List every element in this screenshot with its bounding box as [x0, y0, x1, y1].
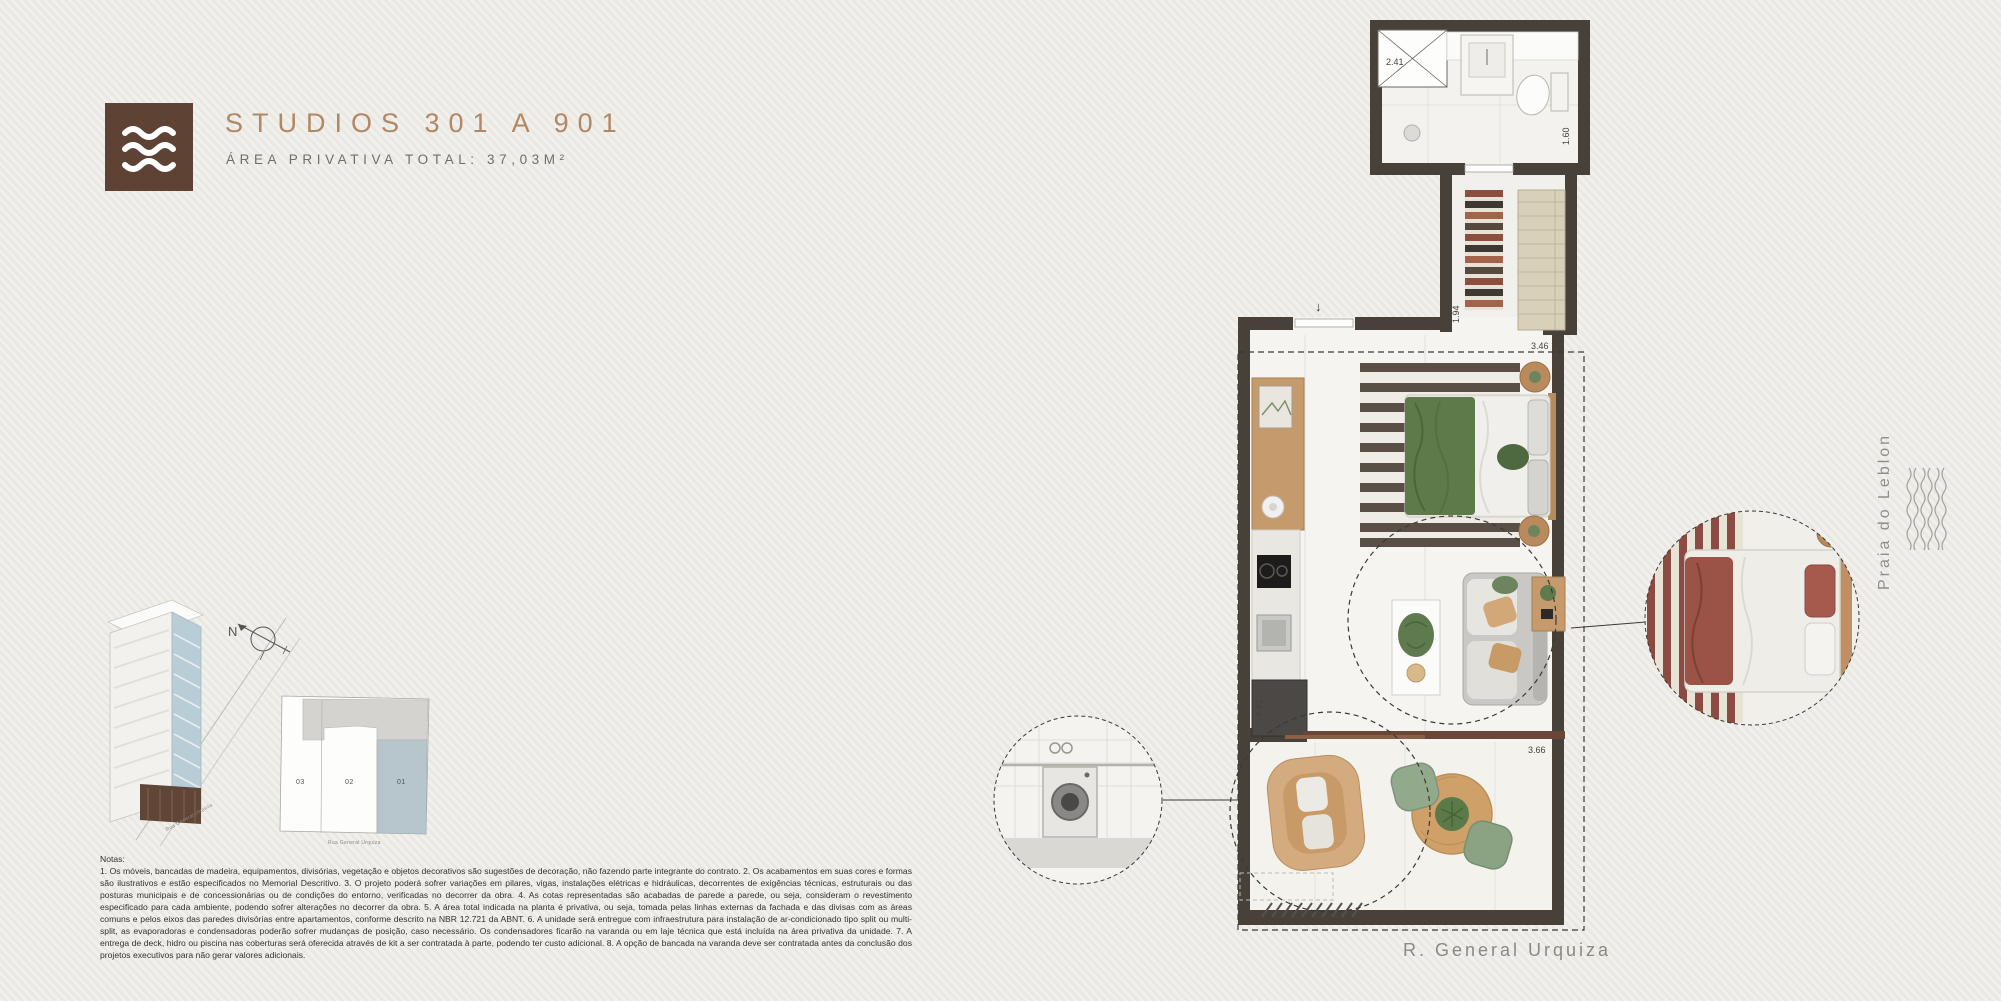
bathroom-door [1465, 165, 1513, 172]
entry-arrow-icon: ↓ [1315, 299, 1322, 314]
location-label: Praia do Leblon [1876, 430, 1900, 590]
sofa-bed-pillow-red [1805, 565, 1835, 617]
sofa-bed-pillow-white [1805, 623, 1835, 675]
key-plan: 03 02 01 Rua General Urquiza [280, 696, 429, 846]
hall-closet: ↓ [1295, 190, 1565, 330]
key-plan-unit-01-area [377, 740, 427, 834]
waves-pattern-icon [1905, 466, 1953, 550]
shower-drain [1404, 125, 1420, 141]
detail-bubble-kitchen [994, 716, 1162, 884]
compass-icon: N [228, 624, 290, 660]
key-plan-unit-02: 02 [345, 779, 354, 786]
kitchen: 4.41 [1252, 530, 1307, 736]
dim-bath-depth: 1.60 [1561, 127, 1571, 145]
dim-bath-width: 2.41 [1386, 57, 1404, 67]
side-table [1532, 577, 1565, 631]
sofa-pillow-green [1492, 576, 1518, 594]
leader-line-sofa-bed [1571, 622, 1646, 628]
dim-balcony-width: 3.66 [1528, 745, 1546, 755]
brand-logo [105, 103, 193, 191]
coffee-table [1392, 600, 1440, 695]
key-plan-street-label: Rua General Urquiza [328, 840, 381, 846]
floor-plan: ↓ [985, 5, 1885, 965]
dim-bedroom-width: 3.46 [1531, 341, 1549, 351]
compass-label: N [228, 624, 237, 639]
entry-door [1295, 319, 1353, 327]
plan-street-label: R. General Urquiza [1403, 940, 1611, 961]
bed [1405, 393, 1556, 520]
notes-heading: Notas: [100, 853, 912, 865]
key-plan-unit-01: 01 [397, 779, 406, 786]
dim-hall-depth: 1.94 [1451, 305, 1461, 323]
building-illustration: Rua General Urquiza [108, 600, 214, 833]
waves-icon [105, 103, 193, 191]
brochure-page: STUDIOS 301 A 901 ÁREA PRIVATIVA TOTAL: … [0, 0, 2001, 1001]
sliding-door [1285, 731, 1565, 739]
page-title: STUDIOS 301 A 901 [225, 108, 626, 139]
bed-throw [1497, 444, 1529, 470]
desk [1252, 378, 1304, 530]
page-subtitle: ÁREA PRIVATIVA TOTAL: 37,03M² [226, 152, 569, 167]
lounge-sofa [1264, 752, 1367, 873]
dim-kitchen-depth: 4.41 [1254, 699, 1264, 717]
key-plan-unit-03: 03 [296, 779, 305, 786]
lounge-pillow-1 [1295, 776, 1328, 813]
wardrobe [1518, 190, 1565, 330]
sofa-bed-blanket [1685, 557, 1733, 685]
lounge-pillow-2 [1301, 813, 1334, 850]
hall-runner-rug [1465, 190, 1503, 310]
notes-body: 1. Os móveis, bancadas de madeira, equip… [100, 866, 912, 960]
notes-block: Notas: 1. Os móveis, bancadas de madeira… [100, 853, 912, 961]
detail-bubble-sofa-bed [1645, 511, 1859, 725]
key-plan-group: Rua General Urquiza N 03 02 01 Rua Gener… [100, 588, 520, 878]
